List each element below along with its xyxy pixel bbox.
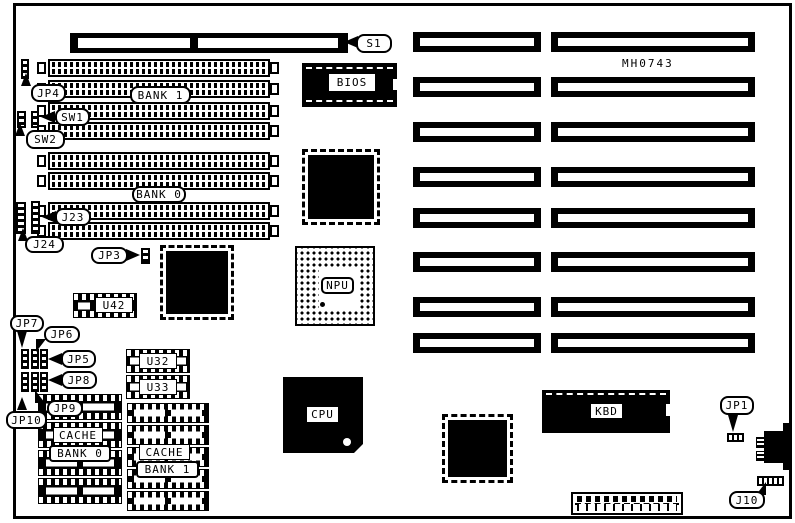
cache-right-text: CACHE (145, 446, 183, 459)
keyboard-connector (783, 423, 792, 470)
qfp-chip (448, 420, 507, 477)
u33-label-text: U33 (147, 381, 170, 394)
part-number-text: MH0743 (622, 57, 674, 70)
jumper-pins (31, 349, 39, 369)
expansion-slot (551, 32, 755, 52)
jp6-label: JP6 (44, 326, 80, 343)
sw1-label: SW1 (55, 108, 90, 126)
npu-label-text: NPU (326, 279, 349, 292)
s1-label-text: S1 (366, 37, 381, 50)
expansion-slot (551, 77, 755, 97)
s1-slot-key (198, 38, 338, 48)
keyboard-connector-tab (756, 437, 765, 448)
cache-left-label: CACHE (53, 427, 103, 443)
expansion-slot (551, 208, 755, 228)
kbd-notch (666, 404, 670, 416)
jp7-label-text: JP7 (16, 317, 39, 330)
simm-clip (270, 62, 279, 74)
sw2-label-text: SW2 (34, 133, 57, 146)
simm-clip (270, 155, 279, 167)
kbd-label: KBD (590, 403, 623, 419)
power-connector (571, 492, 683, 515)
jp6-label-text: JP6 (51, 328, 74, 341)
sw1-callout-tail (41, 111, 55, 123)
expansion-slot (413, 333, 541, 353)
j24-label: J24 (25, 236, 64, 253)
jp4-label: JP4 (31, 84, 66, 102)
npu-pin1-dot (320, 302, 325, 307)
socket-slot (46, 488, 77, 495)
expansion-slot (413, 208, 541, 228)
socket-slot (134, 432, 164, 439)
j10-label: J10 (729, 491, 765, 509)
simm-clip (37, 62, 46, 74)
simm-clip (270, 205, 279, 217)
qfp-chip (166, 251, 228, 314)
power-connector-pins (577, 504, 677, 511)
simm-clip (270, 175, 279, 187)
jp9-callout-tail (35, 390, 45, 403)
expansion-slot (551, 167, 755, 187)
simm-clip (270, 83, 279, 95)
expansion-slot (413, 252, 541, 272)
simm-clip (270, 125, 279, 137)
qfp-chip (308, 155, 374, 219)
bank0-cache-label: BANK 0 (49, 445, 111, 462)
jp10-label: JP10 (6, 411, 47, 429)
keyboard-connector-tab (756, 451, 765, 461)
npu-label: NPU (321, 277, 354, 294)
j10-label-text: J10 (736, 494, 759, 507)
jp10-label-text: JP10 (11, 414, 42, 427)
s1-slot (70, 33, 348, 53)
u32-label-text: U32 (147, 355, 170, 368)
motherboard-diagram: S1 BANK 1 BANK 0 JP4 SW1 SW2 (0, 0, 795, 523)
j23-callout-tail (42, 211, 56, 223)
sw1-label-text: SW1 (61, 111, 84, 124)
s1-label: S1 (356, 34, 392, 53)
expansion-slot (551, 333, 755, 353)
jp8-callout-tail (48, 374, 62, 386)
simm-clip (37, 175, 46, 187)
cache-right-label: CACHE (139, 444, 190, 460)
jp10-callout-tail (17, 397, 27, 410)
socket-slot (134, 498, 164, 505)
simm-clip (270, 225, 279, 237)
jp5-label-text: JP5 (67, 353, 90, 366)
expansion-slot (413, 32, 541, 52)
expansion-slot (413, 122, 541, 142)
expansion-slot (413, 167, 541, 187)
jp1-callout-tail (728, 415, 738, 432)
jp4-callout-tail (21, 73, 31, 86)
jumper-pins (40, 372, 48, 392)
jp9-label: JP9 (47, 400, 83, 417)
jumper-pins (21, 372, 29, 392)
jp1-jumper (727, 433, 744, 442)
expansion-slot (413, 77, 541, 97)
jp5-label: JP5 (61, 350, 96, 368)
bank0-simm-text: BANK 0 (136, 188, 182, 201)
cpu-corner-notch (354, 444, 363, 453)
bank1-cache-text: BANK 1 (145, 463, 191, 476)
jp3-label: JP3 (91, 247, 128, 264)
simm-socket (48, 59, 270, 77)
jp7-callout-tail (17, 331, 27, 348)
cache-left-text: CACHE (59, 429, 97, 442)
simm-clip (270, 105, 279, 117)
cache-socket (127, 491, 209, 511)
u32-label: U32 (139, 353, 177, 369)
bank0-simm-label: BANK 0 (132, 186, 186, 203)
sw1-switch (31, 111, 39, 128)
jp1-label: JP1 (720, 396, 754, 415)
cpu-label-text: CPU (311, 408, 334, 421)
jp3-callout-tail (126, 249, 140, 261)
socket-slot (83, 488, 114, 495)
s1-slot-key (78, 38, 190, 48)
jp7-label: JP7 (10, 315, 44, 332)
socket-slot (83, 404, 114, 411)
u42-label: U42 (95, 297, 133, 313)
j23-header (31, 201, 40, 234)
bank1-simm-label: BANK 1 (130, 86, 191, 104)
part-number: MH0743 (622, 57, 674, 70)
j23-label: J23 (55, 208, 91, 226)
socket-slot (171, 498, 201, 505)
jp8-label-text: JP8 (68, 374, 91, 387)
bank1-simm-text: BANK 1 (138, 89, 184, 102)
u33-label: U33 (139, 379, 177, 395)
expansion-slot (551, 297, 755, 317)
bios-notch (393, 79, 397, 90)
cpu-pin1-dot (343, 438, 351, 446)
jp5-callout-tail (48, 353, 62, 365)
socket-slot (134, 410, 164, 417)
cache-socket (127, 425, 209, 445)
socket-slot (78, 302, 90, 309)
j24-label-text: J24 (33, 238, 56, 251)
jumper-pins (21, 349, 29, 369)
u42-label-text: U42 (103, 299, 126, 312)
socket-slot (171, 432, 201, 439)
kbd-label-text: KBD (595, 405, 618, 418)
jp4-label-text: JP4 (37, 87, 60, 100)
bank1-cache-label: BANK 1 (136, 461, 199, 478)
jp3-label-text: JP3 (98, 249, 121, 262)
keyboard-connector (764, 431, 785, 463)
simm-socket (48, 152, 270, 170)
jp1-label-text: JP1 (726, 399, 749, 412)
bios-label-text: BIOS (337, 76, 368, 89)
bios-label: BIOS (329, 74, 375, 91)
bank0-cache-text: BANK 0 (57, 447, 103, 460)
jumper-pins (40, 349, 48, 369)
cpu-label: CPU (306, 406, 339, 423)
simm-clip (37, 155, 46, 167)
expansion-slot (413, 297, 541, 317)
cache-socket (38, 478, 122, 504)
jp9-label-text: JP9 (54, 402, 77, 415)
expansion-slot (551, 122, 755, 142)
j23-label-text: J23 (62, 211, 85, 224)
sw2-label: SW2 (26, 130, 65, 149)
jp6-callout-tail (36, 339, 46, 352)
power-connector-pins (577, 496, 677, 502)
jp3-jumper (141, 248, 150, 264)
expansion-slot (551, 252, 755, 272)
socket-slot (171, 410, 201, 417)
cache-socket (127, 403, 209, 423)
sw2-callout-tail (15, 123, 25, 136)
jumper-pins (31, 372, 39, 392)
jp8-label: JP8 (61, 371, 97, 389)
